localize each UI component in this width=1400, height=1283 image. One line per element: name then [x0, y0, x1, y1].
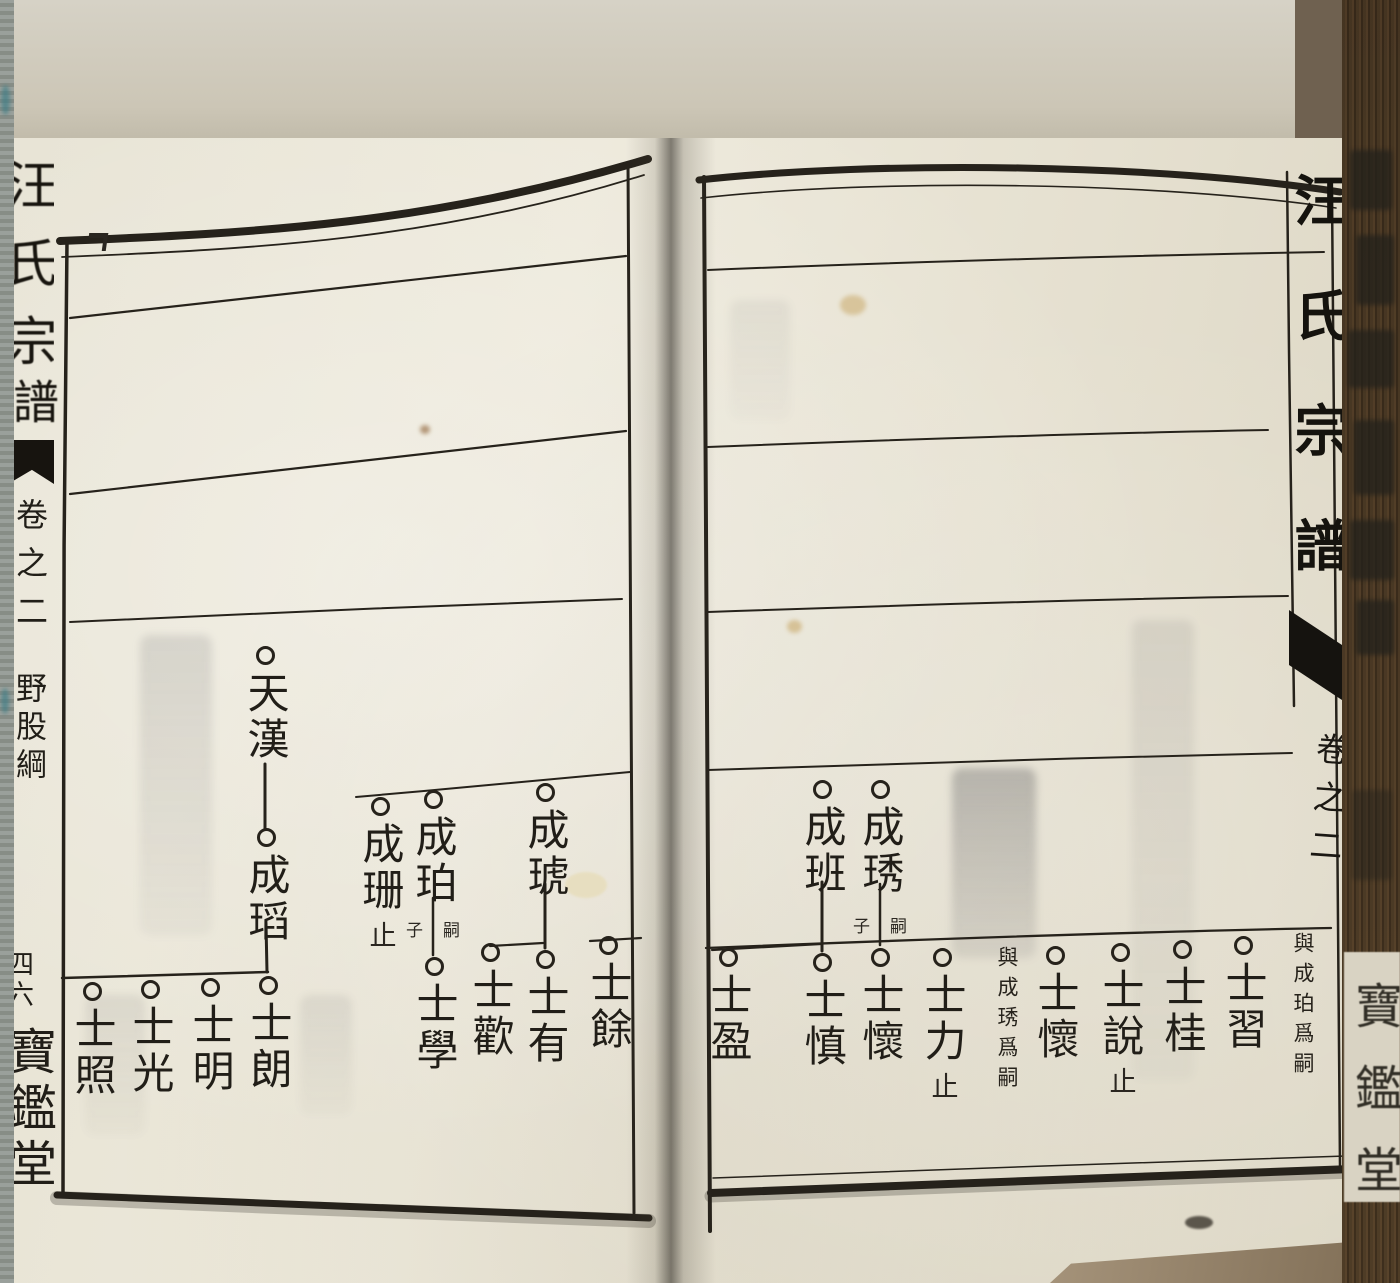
tree-node: 士學 — [411, 957, 457, 1074]
tree-node: 士歡 — [467, 943, 513, 1060]
annotation-char: 子 — [853, 912, 870, 937]
edge-ink-fragment — [1356, 600, 1394, 655]
spine-book-title-char: 譜 — [10, 378, 56, 424]
tree-node: 士明 — [187, 978, 233, 1095]
edge-ink-fragment — [1350, 150, 1392, 210]
tree-node: 士光 — [127, 980, 173, 1097]
heir-annotation: 子 嗣 — [406, 916, 460, 941]
heir-annotation: 子 嗣 — [853, 912, 907, 937]
descendant-circle-marker — [1234, 936, 1253, 955]
person-name: 士習 — [1222, 961, 1264, 1053]
descendant-circle-marker — [536, 783, 555, 802]
tree-node: 成瑫 — [243, 828, 289, 945]
descendant-circle-marker — [813, 953, 832, 972]
spine-book-title: 汪氏宗譜 — [1289, 172, 1344, 632]
descendant-circle-marker — [371, 797, 390, 816]
person-name: 士懷 — [1034, 971, 1076, 1063]
descendant-circle-marker — [257, 828, 276, 847]
tree-node: 士朗 — [245, 976, 291, 1093]
descendant-circle-marker — [871, 948, 890, 967]
descendant-circle-marker — [201, 978, 220, 997]
person-name: 士桂 — [1161, 965, 1203, 1057]
descendant-circle-marker — [813, 780, 832, 799]
person-name: 成珀 — [412, 815, 454, 907]
person-name: 士歡 — [469, 968, 511, 1060]
person-name: 成班 — [801, 805, 843, 897]
edge-hall-name-clip: 寶鑑堂 — [1346, 975, 1400, 1215]
tree-node: 成琥 — [522, 783, 568, 900]
tree-node: 成珊 止 — [357, 797, 403, 948]
descendant-circle-marker — [536, 950, 555, 969]
heir-annotation-column: 與成珀爲嗣 — [1292, 932, 1313, 1082]
descendant-circle-marker — [141, 980, 160, 999]
photo-background-top — [0, 0, 1400, 152]
edge-ink-fragment — [1354, 420, 1394, 495]
person-name: 士學 — [413, 982, 455, 1074]
descendant-circle-marker — [425, 957, 444, 976]
ink-speck — [1185, 1216, 1213, 1229]
annotation-char: 嗣 — [443, 916, 460, 941]
tree-node: 士懷 — [1032, 946, 1078, 1063]
tree-node: 士慎 — [799, 953, 845, 1070]
tree-node: 天漢 — [242, 646, 288, 763]
person-name: 成琇 — [859, 805, 901, 897]
fabric-thread — [1, 85, 10, 115]
tree-node: 士桂 — [1159, 940, 1205, 1057]
line-ends-mark: 止 — [1107, 1067, 1134, 1094]
person-name: 士明 — [189, 1003, 231, 1095]
tree-node: 士懷 — [857, 948, 903, 1065]
edge-ink-fragment — [1352, 790, 1392, 880]
heir-annotation-column: 與成琇爲嗣 — [996, 946, 1017, 1096]
descendant-circle-marker — [1046, 946, 1065, 965]
binding-fabric-edge — [0, 0, 14, 1283]
tree-node: 士有 — [522, 950, 568, 1067]
tree-node: 士餘 — [585, 936, 631, 1053]
person-name: 天漢 — [244, 671, 286, 763]
descendant-circle-marker — [1111, 943, 1130, 962]
descendant-circle-marker — [871, 780, 890, 799]
book-gutter-shadow — [626, 138, 716, 1283]
descendant-circle-marker — [256, 646, 275, 665]
person-name: 士說 — [1099, 968, 1141, 1060]
edge-ink-fragment — [1356, 235, 1394, 305]
descendant-circle-marker — [719, 948, 738, 967]
descendant-circle-marker — [599, 936, 618, 955]
tree-node: 士習 — [1220, 936, 1266, 1053]
line-ends-mark: 止 — [367, 921, 394, 948]
descendant-circle-marker — [83, 982, 102, 1001]
annotation-char: 子 — [406, 916, 423, 941]
descendant-circle-marker — [259, 976, 278, 995]
person-name: 士照 — [71, 1007, 113, 1099]
tree-node: 士照 — [69, 982, 115, 1099]
person-name: 士餘 — [587, 961, 629, 1053]
tree-node: 成班 — [799, 780, 845, 897]
genealogy-book-photo: 汪氏宗 譜 卷之二 野股綱 四六 寶鑑堂 天漢 成瑫 成珊 止 成珀 子 嗣 成… — [0, 0, 1400, 1283]
annotation-char: 嗣 — [890, 912, 907, 937]
spine-volume-label: 卷之二 — [14, 498, 46, 642]
person-name: 成琥 — [524, 808, 566, 900]
person-name: 士有 — [524, 975, 566, 1067]
tree-node: 成琇 — [857, 780, 903, 897]
person-name: 士力 — [921, 973, 963, 1065]
descendant-circle-marker — [933, 948, 952, 967]
fabric-thread — [1, 688, 9, 714]
edge-ink-fragment — [1350, 520, 1394, 580]
edge-ink-fragment — [1348, 330, 1394, 388]
person-name: 士朗 — [247, 1001, 289, 1093]
person-name: 成瑫 — [245, 853, 287, 945]
edge-hall-name: 寶鑑堂 — [1350, 981, 1398, 1215]
person-name: 士懷 — [859, 973, 901, 1065]
descendant-circle-marker — [424, 790, 443, 809]
descendant-circle-marker — [1173, 940, 1192, 959]
person-name: 士慎 — [801, 978, 843, 1070]
person-name: 士光 — [129, 1005, 171, 1097]
line-ends-mark: 止 — [929, 1072, 956, 1099]
descendant-circle-marker — [481, 943, 500, 962]
tree-node: 士說 止 — [1097, 943, 1143, 1094]
tree-node: 士力 止 — [919, 948, 965, 1099]
spine-branch-label: 野股綱 — [12, 672, 43, 786]
tree-node: 成珀 — [410, 790, 456, 907]
person-name: 成珊 — [359, 822, 401, 914]
